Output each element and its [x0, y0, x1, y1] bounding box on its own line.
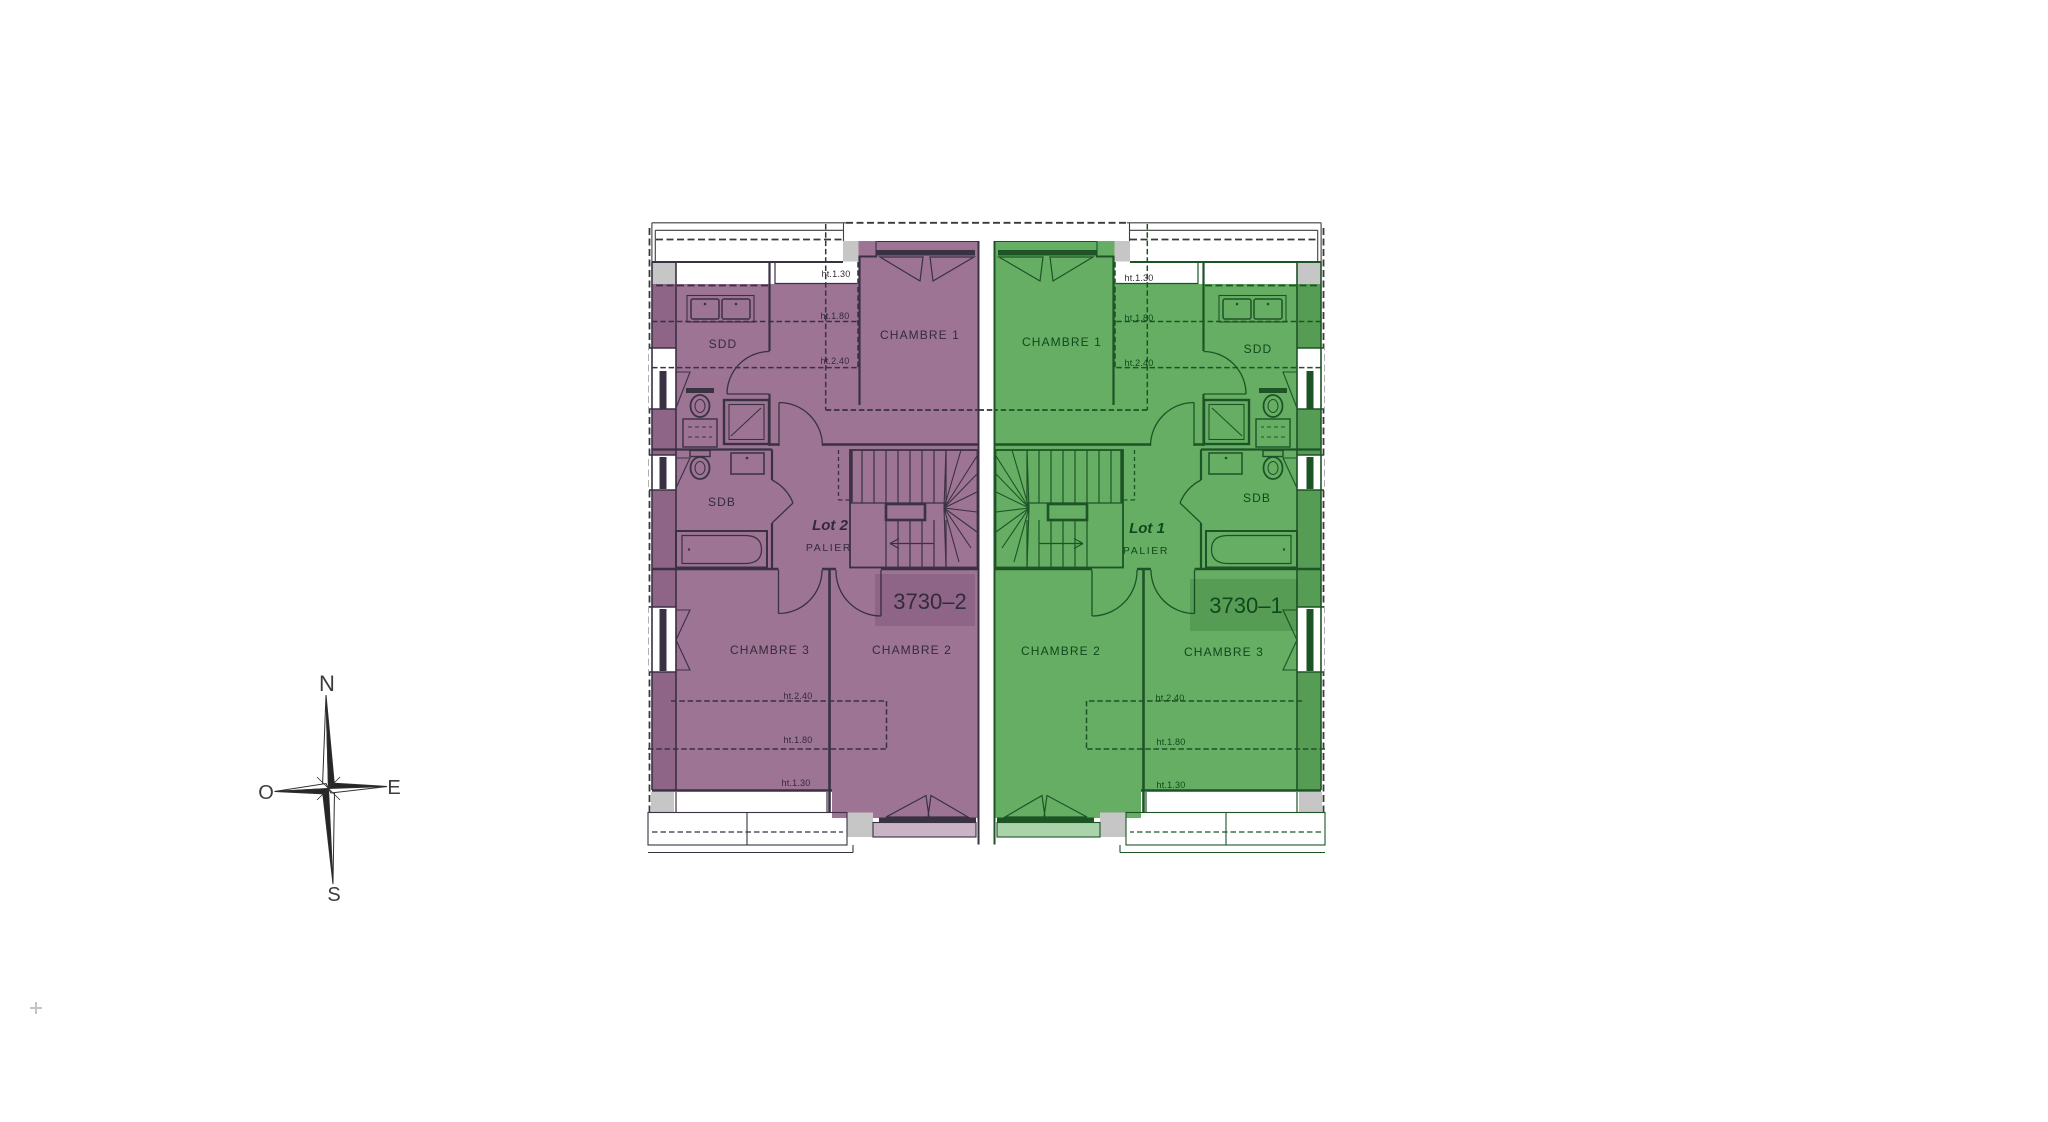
- svg-text:ht.2.40: ht.2.40: [784, 691, 813, 701]
- svg-text:PALIER: PALIER: [1123, 545, 1169, 557]
- svg-text:PALIER: PALIER: [806, 542, 852, 554]
- svg-text:E: E: [387, 777, 400, 799]
- svg-text:CHAMBRE 1: CHAMBRE 1: [880, 328, 960, 342]
- svg-text:CHAMBRE 3: CHAMBRE 3: [1184, 645, 1264, 659]
- svg-text:ht.1.30: ht.1.30: [822, 269, 851, 279]
- svg-text:ht.1.30: ht.1.30: [1157, 780, 1186, 790]
- svg-text:SDD: SDD: [709, 337, 738, 351]
- svg-text:Lot 2: Lot 2: [812, 517, 848, 534]
- svg-text:ht.2.40: ht.2.40: [1125, 358, 1154, 368]
- svg-text:ht.1.80: ht.1.80: [1157, 737, 1186, 747]
- svg-text:O: O: [258, 782, 274, 804]
- svg-text:SDD: SDD: [1244, 342, 1273, 356]
- svg-text:CHAMBRE 3: CHAMBRE 3: [730, 643, 810, 657]
- svg-text:ht.1.30: ht.1.30: [782, 778, 811, 788]
- svg-text:ht.1.30: ht.1.30: [1125, 273, 1154, 283]
- svg-text:ht.1.80: ht.1.80: [1125, 313, 1154, 323]
- svg-text:Lot 1: Lot 1: [1129, 520, 1165, 537]
- svg-text:S: S: [327, 884, 340, 906]
- svg-text:CHAMBRE 1: CHAMBRE 1: [1022, 335, 1102, 349]
- svg-text:ht.2.40: ht.2.40: [821, 356, 850, 366]
- svg-text:ht.1.80: ht.1.80: [784, 735, 813, 745]
- svg-text:CHAMBRE 2: CHAMBRE 2: [872, 643, 952, 657]
- svg-text:CHAMBRE 2: CHAMBRE 2: [1021, 644, 1101, 658]
- svg-text:SDB: SDB: [1243, 491, 1271, 505]
- svg-text:ht.1.80: ht.1.80: [821, 311, 850, 321]
- svg-text:ht.2.40: ht.2.40: [1156, 693, 1185, 703]
- svg-text:3730–2: 3730–2: [893, 589, 966, 614]
- svg-text:SDB: SDB: [708, 495, 736, 509]
- svg-text:3730–1: 3730–1: [1209, 593, 1282, 618]
- svg-text:N: N: [319, 671, 335, 696]
